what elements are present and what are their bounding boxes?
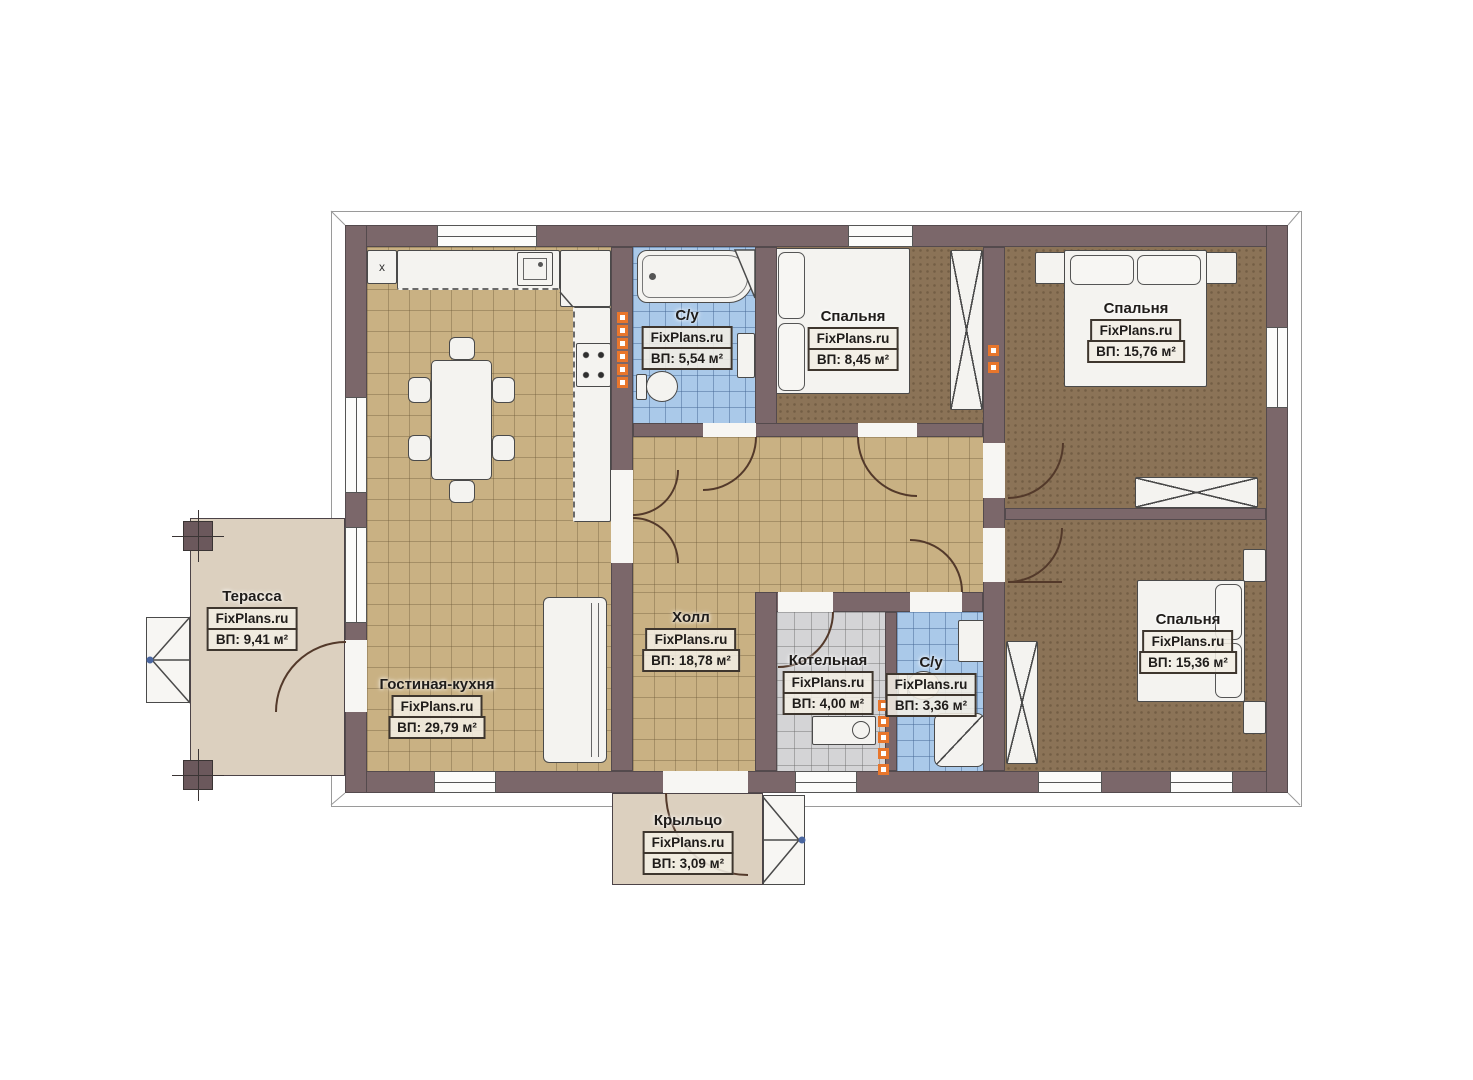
area-box: ВП: 3,09 м² (643, 852, 733, 875)
brand-box: FixPlans.ru (646, 628, 737, 651)
terrace-stairs (146, 617, 190, 703)
radiator-marker-icon (617, 377, 628, 388)
radiator-marker-icon (617, 351, 628, 362)
brand-box: FixPlans.ru (392, 695, 483, 718)
terrace-post (183, 521, 213, 551)
radiator-marker-icon (878, 764, 889, 775)
window (1266, 327, 1288, 408)
wall (633, 423, 983, 437)
room-name: Холл (672, 609, 710, 626)
room-label-porch: Крыльцо FixPlans.ru ВП: 3,09 м² (643, 812, 734, 875)
wall (755, 247, 777, 437)
porch-steps (763, 795, 805, 885)
brand-box: FixPlans.ru (808, 327, 899, 350)
floor-plan: x (0, 0, 1473, 1080)
area-box: ВП: 18,78 м² (642, 649, 740, 672)
room-name: Терасса (222, 588, 281, 605)
sofa (543, 597, 607, 763)
bathtub-basin (642, 255, 748, 298)
radiator-marker-icon (617, 364, 628, 375)
pillow (778, 323, 805, 391)
pillow (1137, 255, 1201, 285)
radiator-marker-icon (988, 345, 999, 356)
door-opening-bathroom2 (910, 592, 962, 612)
chair (492, 435, 515, 461)
chair (449, 480, 475, 503)
room-label-hall: Холл FixPlans.ru ВП: 18,78 м² (642, 609, 740, 672)
room-name: Спальня (1104, 300, 1169, 317)
kitchen-side-counter (573, 307, 611, 522)
room-label-living: Гостиная-кухня FixPlans.ru ВП: 29,79 м² (380, 676, 495, 739)
area-box: ВП: 8,45 м² (808, 348, 898, 371)
brand-box: FixPlans.ru (1143, 630, 1234, 653)
door-opening-living-hall (611, 470, 633, 563)
door-opening-bedroom1 (858, 423, 917, 437)
wall (1266, 225, 1288, 793)
washbasin (737, 333, 755, 378)
chair (408, 435, 431, 461)
wardrobe (1006, 641, 1038, 764)
radiator-marker-icon (988, 362, 999, 373)
radiator-marker-icon (617, 312, 628, 323)
sink-basin (523, 258, 547, 280)
chair (492, 377, 515, 403)
area-box: ВП: 29,79 м² (388, 716, 486, 739)
room-label-boiler: Котельная FixPlans.ru ВП: 4,00 м² (783, 652, 874, 715)
window (795, 771, 857, 793)
area-box: ВП: 4,00 м² (783, 692, 873, 715)
room-name: Гостиная-кухня (380, 676, 495, 693)
door-opening-bathroom1 (703, 423, 756, 437)
stove (576, 343, 611, 387)
window (345, 397, 367, 493)
kitchen-sink (517, 252, 553, 286)
washing-machine-drum (852, 721, 870, 739)
nightstand (1035, 252, 1067, 284)
room-label-bedroom3: Спальня FixPlans.ru ВП: 15,36 м² (1139, 611, 1237, 674)
door-opening-porch (663, 771, 748, 793)
wardrobe (950, 250, 983, 410)
window (1038, 771, 1102, 793)
brand-box: FixPlans.ru (1091, 319, 1182, 342)
door-opening-terrace (345, 640, 367, 712)
room-label-bedroom2: Спальня FixPlans.ru ВП: 15,76 м² (1087, 300, 1185, 363)
area-box: ВП: 5,54 м² (642, 347, 732, 370)
kitchen-corner-counter (560, 250, 611, 307)
bathtub (637, 250, 753, 303)
fridge-label: x (379, 260, 385, 274)
wardrobe (1135, 477, 1258, 508)
room-name: Котельная (789, 652, 868, 669)
room-name: Спальня (821, 308, 886, 325)
wall (1005, 508, 1266, 520)
window (437, 225, 537, 247)
room-label-bathroom2: С/у FixPlans.ru ВП: 3,36 м² (886, 654, 977, 717)
toilet (646, 371, 678, 402)
brand-box: FixPlans.ru (643, 831, 734, 854)
brand-box: FixPlans.ru (642, 326, 733, 349)
radiator-marker-icon (617, 338, 628, 349)
chair (408, 377, 431, 403)
pillow (778, 252, 805, 319)
radiator-marker-icon (878, 748, 889, 759)
brand-box: FixPlans.ru (783, 671, 874, 694)
radiator-marker-icon (878, 716, 889, 727)
window (848, 225, 913, 247)
room-label-bathroom1: С/у FixPlans.ru ВП: 5,54 м² (642, 307, 733, 370)
terrace-post (183, 760, 213, 790)
window (1170, 771, 1233, 793)
room-name: С/у (919, 654, 942, 671)
brand-box: FixPlans.ru (207, 607, 298, 630)
wall (983, 247, 1005, 771)
door-opening-bedroom2 (983, 443, 1005, 498)
dining-table (431, 360, 492, 480)
door-opening-bedroom3 (983, 528, 1005, 582)
nightstand (1243, 701, 1266, 734)
window (434, 771, 496, 793)
pillow (1070, 255, 1134, 285)
room-name: Спальня (1156, 611, 1221, 628)
area-box: ВП: 15,76 м² (1087, 340, 1185, 363)
door-opening-boiler (778, 592, 833, 612)
room-name: Крыльцо (654, 812, 722, 829)
wall (755, 592, 777, 771)
hall-floor (633, 437, 983, 592)
area-box: ВП: 15,36 м² (1139, 651, 1237, 674)
nightstand (1243, 549, 1266, 582)
radiator-marker-icon (617, 325, 628, 336)
room-label-terrace: Терасса FixPlans.ru ВП: 9,41 м² (207, 588, 298, 651)
area-box: ВП: 3,36 м² (886, 694, 976, 717)
room-name: С/у (675, 307, 698, 324)
chair (449, 337, 475, 360)
radiator-marker-icon (878, 732, 889, 743)
nightstand (1205, 252, 1237, 284)
fridge: x (367, 250, 397, 284)
window (345, 527, 367, 623)
shower (934, 713, 985, 767)
area-box: ВП: 9,41 м² (207, 628, 297, 651)
room-label-bedroom1: Спальня FixPlans.ru ВП: 8,45 м² (808, 308, 899, 371)
brand-box: FixPlans.ru (886, 673, 977, 696)
